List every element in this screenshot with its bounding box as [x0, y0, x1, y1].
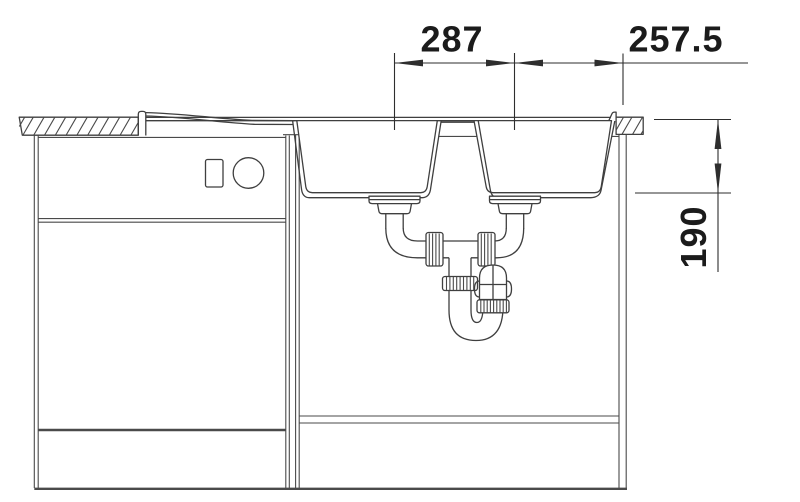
- arrowhead-right: [486, 60, 515, 67]
- left-cabinet: [34, 136, 289, 489]
- control-knob: [233, 158, 264, 189]
- dim-287-label: 287: [420, 19, 483, 60]
- compression-nut-right: [478, 233, 495, 267]
- right-drain: [490, 196, 541, 228]
- dim-257-5: 257.5: [515, 19, 749, 106]
- countertop-right-section: [616, 117, 643, 134]
- sink-right-lip: [609, 112, 616, 121]
- arrowhead-left: [395, 60, 424, 67]
- waste-pipe-assembly: [386, 228, 524, 341]
- control-square: [206, 160, 224, 188]
- countertop-left-section: [19, 117, 138, 135]
- sink-installation-drawing: 287 257.5 190: [0, 0, 800, 502]
- dim-190-label: 190: [673, 205, 714, 268]
- arrowhead-down: [715, 164, 722, 194]
- arrowhead-right: [595, 60, 624, 67]
- drainboard: [146, 113, 295, 125]
- cabinet-door-gap: [38, 219, 286, 223]
- hatch-pattern-right: [616, 117, 643, 134]
- dim-257-5-label: 257.5: [628, 19, 723, 60]
- technical-drawing-canvas: 287 257.5 190: [0, 0, 800, 502]
- dim-287: 287: [395, 19, 515, 131]
- sink-left-lip: [138, 111, 146, 135]
- compression-nut-left: [426, 233, 443, 267]
- arrowhead-up: [715, 120, 722, 150]
- drop-pipe-nut: [443, 277, 478, 291]
- plinth-line-right: [299, 416, 619, 423]
- arrowhead-left: [515, 60, 544, 67]
- right-bowl: [474, 121, 615, 198]
- sink-unit: [138, 111, 616, 197]
- trap-outlet: [475, 265, 512, 313]
- left-drain: [369, 196, 420, 228]
- dim-190: 190: [635, 120, 731, 273]
- hatch-pattern-left: [19, 117, 138, 135]
- left-bowl: [293, 121, 442, 198]
- trap-outlet-nut: [477, 300, 509, 313]
